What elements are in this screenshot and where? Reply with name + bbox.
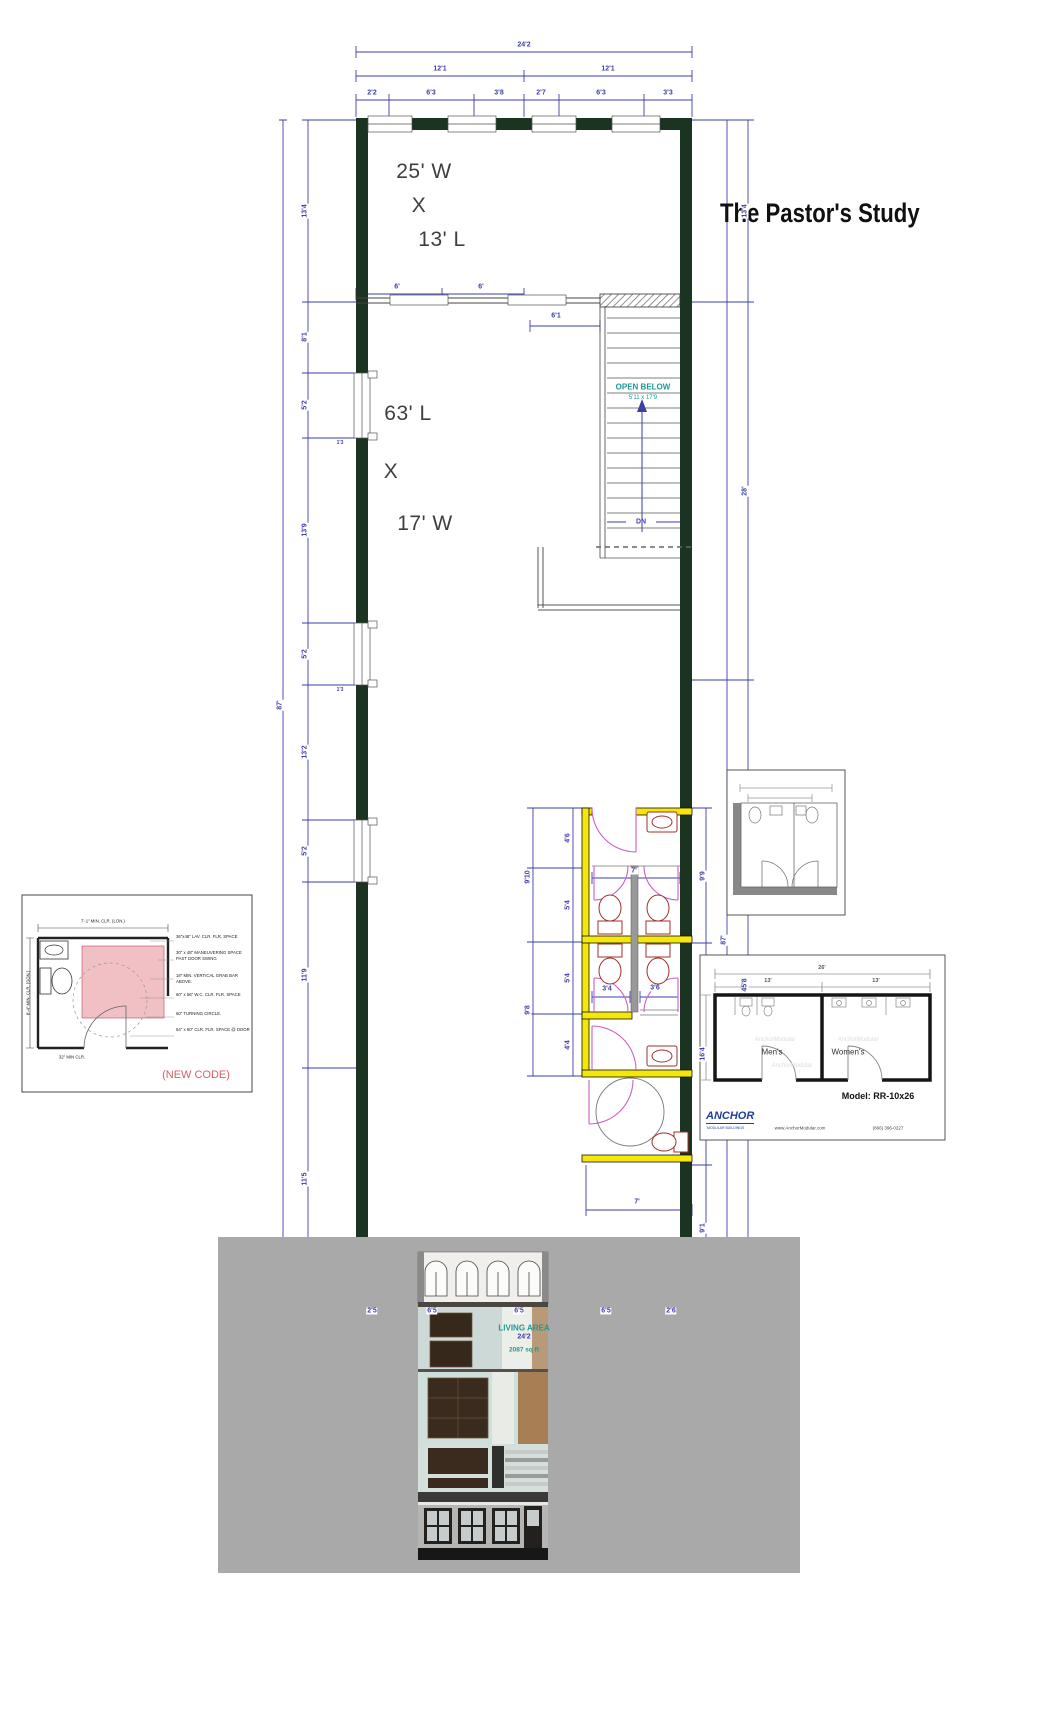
dim-bath-right-0: 9'9 <box>700 870 707 881</box>
dim-ada-width: 7' <box>633 1199 641 1206</box>
main-room-x: X <box>384 460 399 484</box>
dim-opening-1: 6' <box>477 284 485 291</box>
dim-bottom-seg-4: 2'6 <box>665 1308 676 1315</box>
dim-right-overall: 87' <box>721 934 728 945</box>
ada-turning-circle <box>596 1078 664 1146</box>
dim-bath-inner-3: 4'4 <box>565 1039 572 1050</box>
dim-stall-a: 3'4 <box>601 986 612 993</box>
upper-room-x: X <box>412 194 427 218</box>
model-dim-left: 13' <box>764 978 771 984</box>
dim-top-right-half: 12'1 <box>600 66 615 73</box>
watermark: AnchorModular <box>772 1063 813 1069</box>
dim-top-seg-5: 3'3 <box>662 90 673 97</box>
dim-bottom-overall: 24'2 <box>516 1334 531 1341</box>
dim-bottom-seg-2: 6'5 <box>513 1308 524 1315</box>
upper-room-width: 25' W <box>396 160 452 184</box>
ada-note-3: 60" x 56" W.C. CLR. FLR. SPACE <box>176 992 250 998</box>
page-title: The Pastor's Study <box>720 198 920 229</box>
model-number: Model: RR-10x26 <box>842 1091 915 1101</box>
anchor-logo: ANCHOR <box>706 1110 754 1124</box>
upper-room-length: 13' L <box>418 228 465 252</box>
stall-partition <box>631 866 638 1012</box>
new-code-stamp: (NEW CODE) <box>162 1069 230 1081</box>
anchor-logo-subtext: MODULAR BUILDINGS <box>707 1126 744 1130</box>
dim-top-overall: 24'2 <box>516 42 531 49</box>
dim-stall-b: 3'6 <box>649 985 660 992</box>
dim-opening-0: 6' <box>393 284 401 291</box>
ada-note-1: 30" x 48" MANEUVERING SPACE PAST DOOR SW… <box>176 950 250 961</box>
dim-opening-2: 6'1 <box>550 313 561 320</box>
open-below-size: 5'11 x 17'9 <box>629 395 657 401</box>
ada-bottom-note: 32" MIN CLR. <box>59 1055 85 1060</box>
mens-label: Men's <box>761 1048 782 1057</box>
dim-left-seg-4: 5'2 <box>302 648 309 659</box>
mid-partition-wall <box>538 547 680 610</box>
dim-bottom-seg-0: 2'5 <box>366 1308 377 1315</box>
watermark: AnchorModular <box>838 1037 879 1043</box>
dim-top-left-half: 12'1 <box>432 66 447 73</box>
restroom-fixtures <box>598 812 688 1152</box>
dim-bath-outer-1: 9'8 <box>525 1004 532 1015</box>
elevation-rendering <box>218 1237 800 1573</box>
ada-side-note: 8'-4" MIN. CLR. (SON.) <box>26 971 31 1015</box>
dim-top-seg-2: 3'8 <box>493 90 504 97</box>
dim-bath-right-1: 16'4 <box>700 1046 707 1061</box>
stairs-dn-label: DN <box>635 519 647 526</box>
dim-bottom-seg-3: 6'5 <box>600 1308 611 1315</box>
model-dim-right: 13' <box>872 978 879 984</box>
dim-window-a: 1'3 <box>336 440 345 446</box>
open-below-label: OPEN BELOW <box>616 383 671 392</box>
dim-bath-inner-0: 4'6 <box>565 832 572 843</box>
dim-bottom-seg-1: 6'5 <box>426 1308 437 1315</box>
main-room-length: 63' L <box>384 402 431 426</box>
dim-left-seg-1: 8'1 <box>302 331 309 342</box>
living-area-sqft: 2087 sq ft <box>508 1347 540 1354</box>
dim-top-seg-0: 2'2 <box>366 90 377 97</box>
dim-left-seg-3: 13'9 <box>302 522 309 537</box>
stair-arrow <box>637 399 647 532</box>
dim-bath-inner-1: 5'4 <box>565 899 572 910</box>
restroom-block <box>582 808 692 1162</box>
dim-left-seg-7: 11'9 <box>302 968 309 983</box>
womens-label: Women's <box>832 1048 865 1057</box>
ada-note-0: 36"x48" LAV. CLR. FLR. SPACE <box>176 934 250 940</box>
watermark: AnchorModular <box>755 1037 796 1043</box>
dim-left-seg-5: 13'2 <box>302 744 309 759</box>
dim-bath-right-2: 9'1 <box>700 1222 707 1233</box>
dim-bath-outer-0: 9'10 <box>525 869 532 884</box>
ada-note-5: 54" x 60" CLR. FLR. SPACE @ DOOR <box>176 1027 250 1033</box>
dim-left-seg-0: 13'4 <box>302 203 309 218</box>
dim-left-seg-6: 5'2 <box>302 845 309 856</box>
small-restroom-inset <box>727 770 845 915</box>
ada-note-4: 60" TURNING CIRCLE. <box>176 1011 250 1017</box>
dim-stall-width: 7' <box>630 868 638 875</box>
dim-top-seg-3: 2'7 <box>535 90 546 97</box>
dim-left-seg-2: 5'2 <box>302 399 309 410</box>
dim-top-seg-1: 6'3 <box>425 90 436 97</box>
floorplan-drawing <box>0 0 1063 1735</box>
dim-window-b: 1'3 <box>336 687 345 693</box>
dim-right-seg-2: 45'8 <box>742 977 749 992</box>
phone-text: (866) 396-0227 <box>873 1126 904 1131</box>
dim-left-overall: 87' <box>277 699 284 710</box>
partition-wall <box>356 294 680 307</box>
living-area-label: LIVING AREA <box>497 1324 550 1333</box>
floorplan-page: The Pastor's Study 24'2 12'1 12'1 2'2 6'… <box>0 0 1063 1735</box>
website-text: www.AnchorModular.com <box>775 1126 826 1131</box>
ada-top-note: 7'-1" MIN. CLR. (LON.) <box>81 919 125 924</box>
main-room-width: 17' W <box>397 512 453 536</box>
dim-bath-inner-2: 5'4 <box>565 972 572 983</box>
dim-top-seg-4: 6'3 <box>595 90 606 97</box>
dim-left-seg-8: 11'5 <box>302 1172 309 1187</box>
ada-note-2: 18" MIN. VERTICAL GRAB BAR ABOVE. <box>176 973 250 984</box>
model-dim-width: 26' <box>818 965 825 971</box>
dim-right-seg-1: 28' <box>742 485 749 496</box>
dim-right-seg-0: 13'4 <box>742 203 749 218</box>
